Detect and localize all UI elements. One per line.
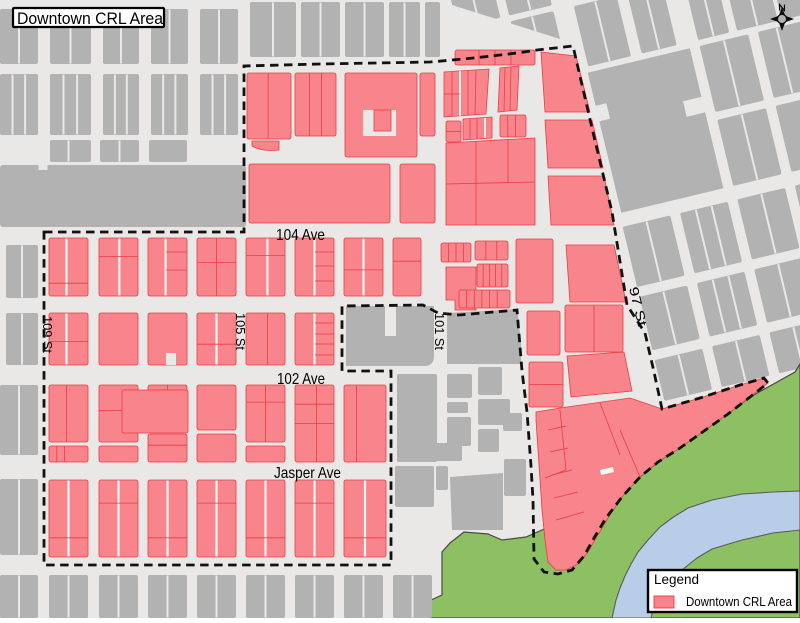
svg-text:Jasper Ave: Jasper Ave (274, 465, 341, 482)
svg-text:102 Ave: 102 Ave (277, 371, 325, 388)
svg-text:Downtown CRL Area: Downtown CRL Area (686, 594, 793, 609)
svg-text:109 St: 109 St (40, 316, 55, 353)
svg-text:Downtown CRL Area: Downtown CRL Area (17, 9, 164, 28)
svg-text:104 Ave: 104 Ave (276, 227, 325, 244)
svg-text:Legend: Legend (654, 572, 699, 587)
svg-text:101 St: 101 St (432, 313, 447, 350)
svg-text:105 St: 105 St (233, 313, 248, 350)
